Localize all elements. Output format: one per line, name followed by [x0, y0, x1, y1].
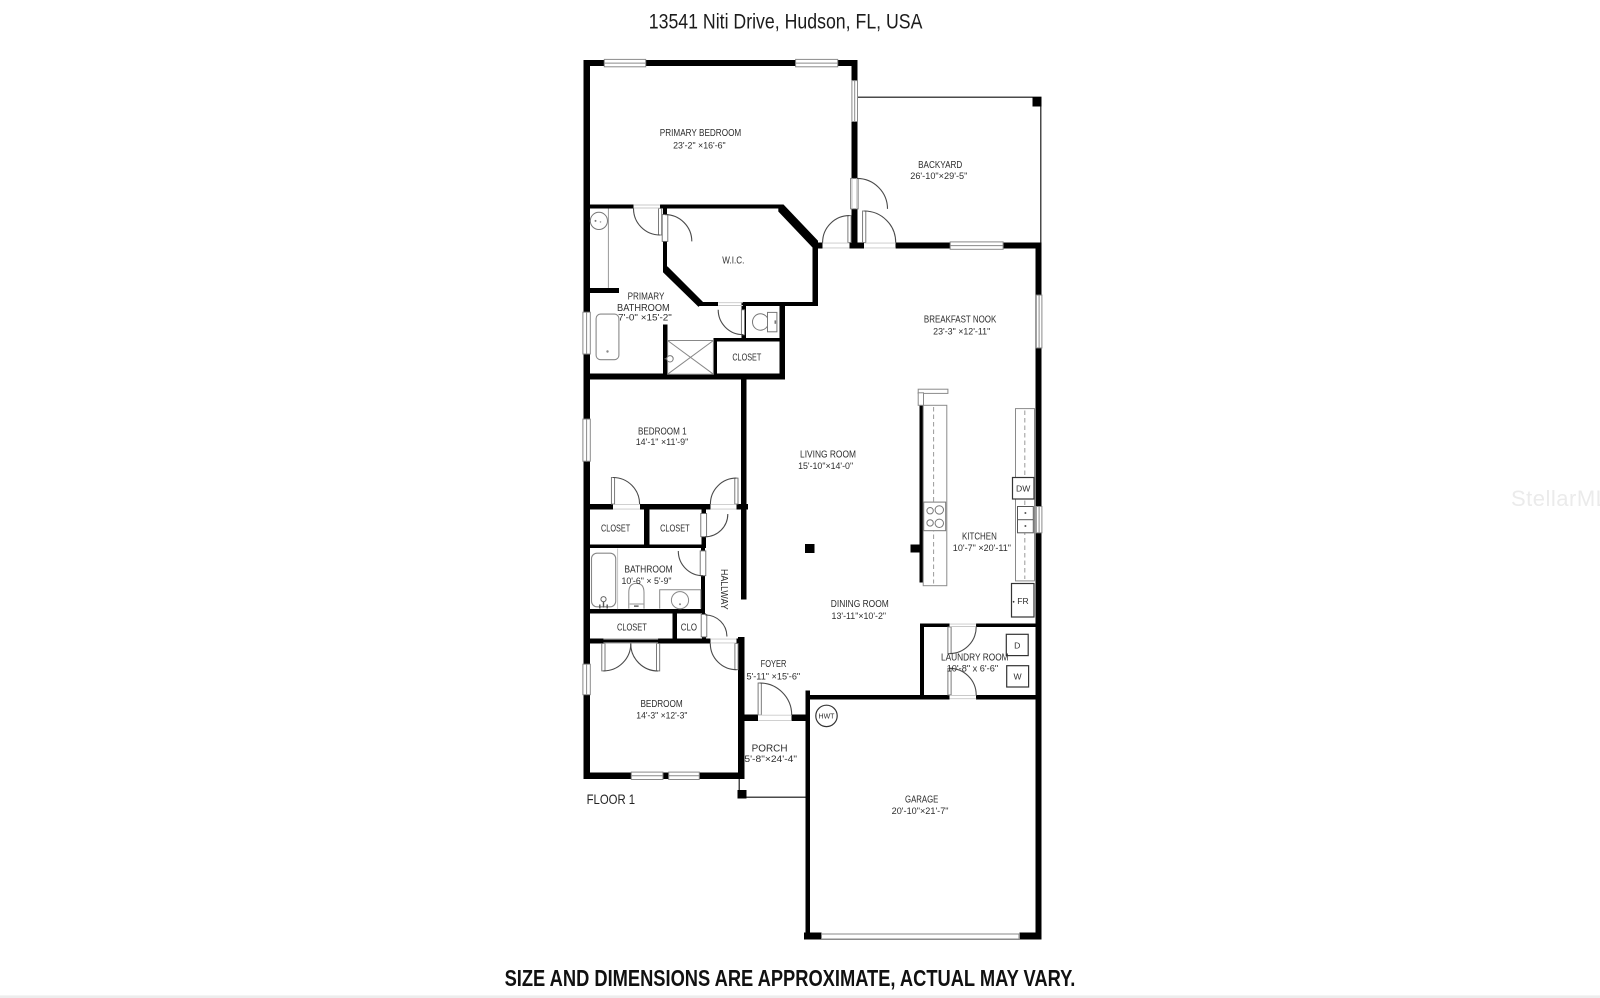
svg-text:W: W [1014, 672, 1023, 682]
svg-text:CLOSET: CLOSET [660, 524, 690, 535]
svg-text:BREAKFAST NOOK: BREAKFAST NOOK [924, 314, 997, 325]
svg-text:26'-10"×29'-5": 26'-10"×29'-5" [910, 171, 967, 181]
svg-text:GARAGE: GARAGE [905, 795, 939, 806]
svg-text:KITCHEN: KITCHEN [962, 531, 997, 542]
svg-text:PORCH: PORCH [752, 744, 788, 755]
svg-text:5'-8"×24'-4": 5'-8"×24'-4" [744, 754, 797, 764]
svg-text:StellarMLS: StellarMLS [1511, 486, 1600, 511]
svg-text:20'-10"×21'-7": 20'-10"×21'-7" [892, 806, 949, 816]
svg-text:13'-11"×10'-2": 13'-11"×10'-2" [832, 611, 887, 621]
svg-text:LIVING ROOM: LIVING ROOM [800, 450, 856, 461]
svg-text:BATHROOM: BATHROOM [624, 564, 672, 575]
svg-text:7'-0" ×15'-2": 7'-0" ×15'-2" [618, 312, 672, 322]
svg-text:14'-1" ×11'-9": 14'-1" ×11'-9" [636, 437, 689, 447]
svg-text:FR: FR [1017, 596, 1028, 606]
svg-text:14'-3" ×12'-3": 14'-3" ×12'-3" [636, 710, 687, 720]
svg-text:CLOSET: CLOSET [601, 524, 630, 535]
svg-text:CLO: CLO [681, 622, 697, 633]
svg-text:10'-8" x 6'-6": 10'-8" x 6'-6" [947, 664, 998, 674]
svg-text:23'-2" ×16'-6": 23'-2" ×16'-6" [673, 141, 726, 151]
svg-text:CLOSET: CLOSET [617, 622, 647, 633]
svg-text:DINING ROOM: DINING ROOM [831, 599, 889, 610]
svg-text:BACKYARD: BACKYARD [918, 160, 962, 171]
svg-text:10'-7" ×20'-11": 10'-7" ×20'-11" [953, 543, 1011, 553]
svg-text:BEDROOM: BEDROOM [640, 699, 682, 710]
svg-text:15'-10"×14'-0": 15'-10"×14'-0" [798, 461, 853, 471]
svg-text:10'-6" × 5'-9": 10'-6" × 5'-9" [621, 576, 671, 586]
svg-text:5'-11" ×15'-6": 5'-11" ×15'-6" [746, 671, 800, 681]
svg-text:CLOSET: CLOSET [732, 353, 761, 364]
svg-text:LAUNDRY ROOM: LAUNDRY ROOM [941, 653, 1009, 664]
svg-text:23'-3" ×12'-11": 23'-3" ×12'-11" [933, 326, 990, 336]
svg-text:W.I.C.: W.I.C. [722, 256, 744, 267]
svg-text:DW: DW [1016, 484, 1031, 494]
svg-text:FOYER: FOYER [761, 659, 787, 670]
svg-text:BEDROOM 1: BEDROOM 1 [638, 427, 687, 438]
svg-text:HWT: HWT [819, 714, 836, 721]
svg-text:SIZE AND DIMENSIONS ARE APPROX: SIZE AND DIMENSIONS ARE APPROXIMATE, ACT… [505, 965, 1076, 991]
svg-text:PRIMARY: PRIMARY [628, 291, 665, 302]
svg-text:13541 Niti Drive, Hudson, FL,: 13541 Niti Drive, Hudson, FL, USA [649, 11, 923, 34]
svg-text:D: D [1014, 640, 1020, 650]
svg-text:FLOOR 1: FLOOR 1 [587, 791, 636, 807]
svg-text:PRIMARY BEDROOM: PRIMARY BEDROOM [660, 128, 742, 139]
svg-text:HALLWAY: HALLWAY [718, 569, 729, 610]
